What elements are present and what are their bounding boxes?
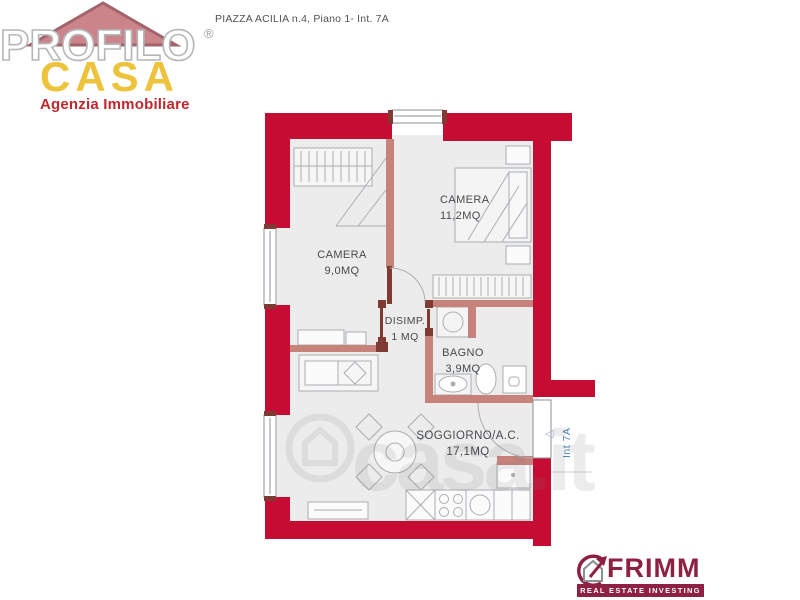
wardrobe-camera9 bbox=[294, 148, 372, 186]
dresser-camera9 bbox=[298, 330, 366, 345]
room-name: SOGGIORNO/A.C. bbox=[415, 428, 521, 444]
room-label-soggiorno: SOGGIORNO/A.C. 17,1MQ bbox=[415, 428, 521, 460]
window-camera9 bbox=[264, 224, 276, 309]
frimm-logo-text: FRIMM bbox=[607, 555, 700, 582]
bidet bbox=[503, 366, 526, 393]
room-label-camera-11: CAMERA 11,2MQ bbox=[440, 192, 502, 224]
window-soggiorno bbox=[264, 411, 276, 501]
room-area: 11,2MQ bbox=[440, 208, 502, 224]
room-name: CAMERA bbox=[308, 247, 376, 263]
shower bbox=[437, 307, 469, 337]
room-name: CAMERA bbox=[440, 192, 502, 208]
address-title: PIAZZA ACILIA n.4, Piano 1- Int. 7A bbox=[215, 13, 389, 25]
washbasin bbox=[435, 374, 471, 395]
frimm-house-icon bbox=[579, 556, 607, 585]
frimm-logo-banner: REAL ESTATE INVESTING bbox=[577, 584, 704, 597]
agency-logo-tagline: Agenzia Immobiliare bbox=[40, 96, 190, 113]
room-name: DISIMP. bbox=[381, 313, 429, 329]
room-area: 9,0MQ bbox=[308, 263, 376, 279]
room-label-disimpegno: DISIMP. 1 MQ bbox=[381, 313, 429, 345]
room-label-bagno: BAGNO 3,9MQ bbox=[436, 345, 490, 377]
registered-trademark-icon: ® bbox=[204, 26, 214, 41]
entrance-arrow-icon: ◁ bbox=[545, 427, 553, 440]
closet-camera11 bbox=[433, 275, 531, 298]
room-area: 1 MQ bbox=[381, 329, 429, 345]
room-area: 17,1MQ bbox=[415, 444, 521, 460]
window-top bbox=[388, 110, 447, 124]
room-area: 3,9MQ bbox=[436, 361, 490, 377]
room-name: BAGNO bbox=[436, 345, 490, 361]
sofa bbox=[299, 355, 378, 391]
agency-logo-casa: CASA bbox=[40, 56, 179, 98]
entrance-unit-label: Int 7A bbox=[561, 428, 573, 458]
room-label-camera-9: CAMERA 9,0MQ bbox=[308, 247, 376, 279]
